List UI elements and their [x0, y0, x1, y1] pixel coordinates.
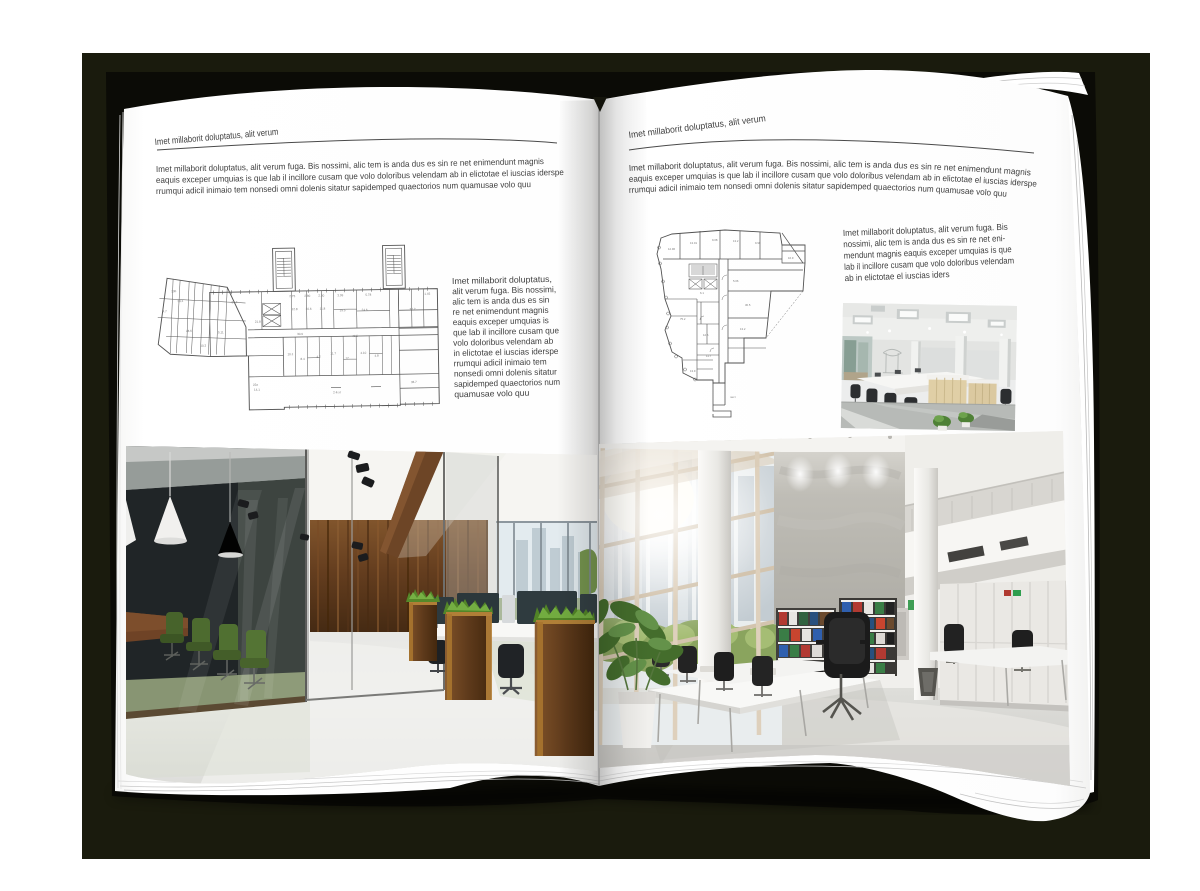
svg-text:13.2: 13.2: [740, 327, 746, 331]
svg-text:14.1: 14.1: [254, 388, 260, 392]
svg-text:4.2: 4.2: [316, 355, 321, 359]
svg-text:30.5: 30.5: [745, 303, 751, 307]
svg-text:2.80: 2.80: [304, 294, 310, 298]
svg-text:37.7: 37.7: [231, 300, 237, 304]
svg-text:40.5: 40.5: [352, 334, 358, 338]
svg-text:22a: 22a: [253, 383, 258, 387]
svg-text:8.4: 8.4: [300, 357, 305, 361]
svg-text:4.7: 4.7: [163, 309, 168, 313]
svg-text:21.8: 21.8: [255, 320, 261, 324]
svg-text:10.1: 10.1: [287, 352, 293, 356]
svg-text:11.8: 11.8: [320, 307, 326, 311]
svg-text:39.2: 39.2: [177, 299, 183, 303]
svg-text:5.78: 5.78: [365, 293, 371, 297]
svg-text:2-й эт: 2-й эт: [333, 390, 342, 394]
svg-text:19.5: 19.5: [340, 308, 346, 312]
svg-text:2.75: 2.75: [289, 294, 295, 298]
svg-text:75.2: 75.2: [680, 317, 686, 321]
svg-text:4.10: 4.10: [360, 351, 366, 355]
svg-text:2.30: 2.30: [318, 294, 324, 298]
svg-text:4.8: 4.8: [374, 354, 379, 358]
svg-text:17: 17: [345, 356, 349, 360]
svg-text:quamusae volo quu: quamusae volo quu: [454, 388, 529, 400]
svg-text:9.08: 9.08: [712, 238, 718, 242]
svg-text:12.6: 12.6: [703, 333, 709, 337]
svg-text:лест: лест: [730, 395, 737, 399]
svg-text:16.9: 16.9: [788, 256, 794, 260]
svg-text:30.9: 30.9: [297, 332, 303, 336]
svg-text:13.2: 13.2: [733, 239, 739, 243]
svg-text:40.3: 40.3: [200, 344, 206, 348]
svg-text:5.06: 5.06: [733, 279, 739, 283]
svg-text:36.7: 36.7: [411, 380, 417, 384]
svg-text:12.96: 12.96: [668, 247, 675, 251]
svg-text:9.96: 9.96: [755, 241, 761, 245]
svg-text:6.1: 6.1: [700, 291, 704, 295]
svg-text:12.8: 12.8: [292, 307, 298, 311]
svg-text:28.6: 28.6: [186, 329, 192, 333]
svg-text:32.2: 32.2: [410, 307, 416, 311]
svg-text:10.6: 10.6: [306, 307, 312, 311]
svg-text:29b: 29b: [171, 289, 176, 293]
svg-text:3.09: 3.09: [337, 293, 343, 297]
svg-text:5.11: 5.11: [218, 330, 224, 334]
svg-text:13.01: 13.01: [690, 241, 697, 245]
svg-text:13.9: 13.9: [690, 369, 696, 373]
svg-text:24.6: 24.6: [362, 308, 368, 312]
svg-text:1.45: 1.45: [424, 292, 430, 296]
svg-text:11.7: 11.7: [330, 351, 336, 355]
svg-text:11.7: 11.7: [706, 354, 712, 358]
